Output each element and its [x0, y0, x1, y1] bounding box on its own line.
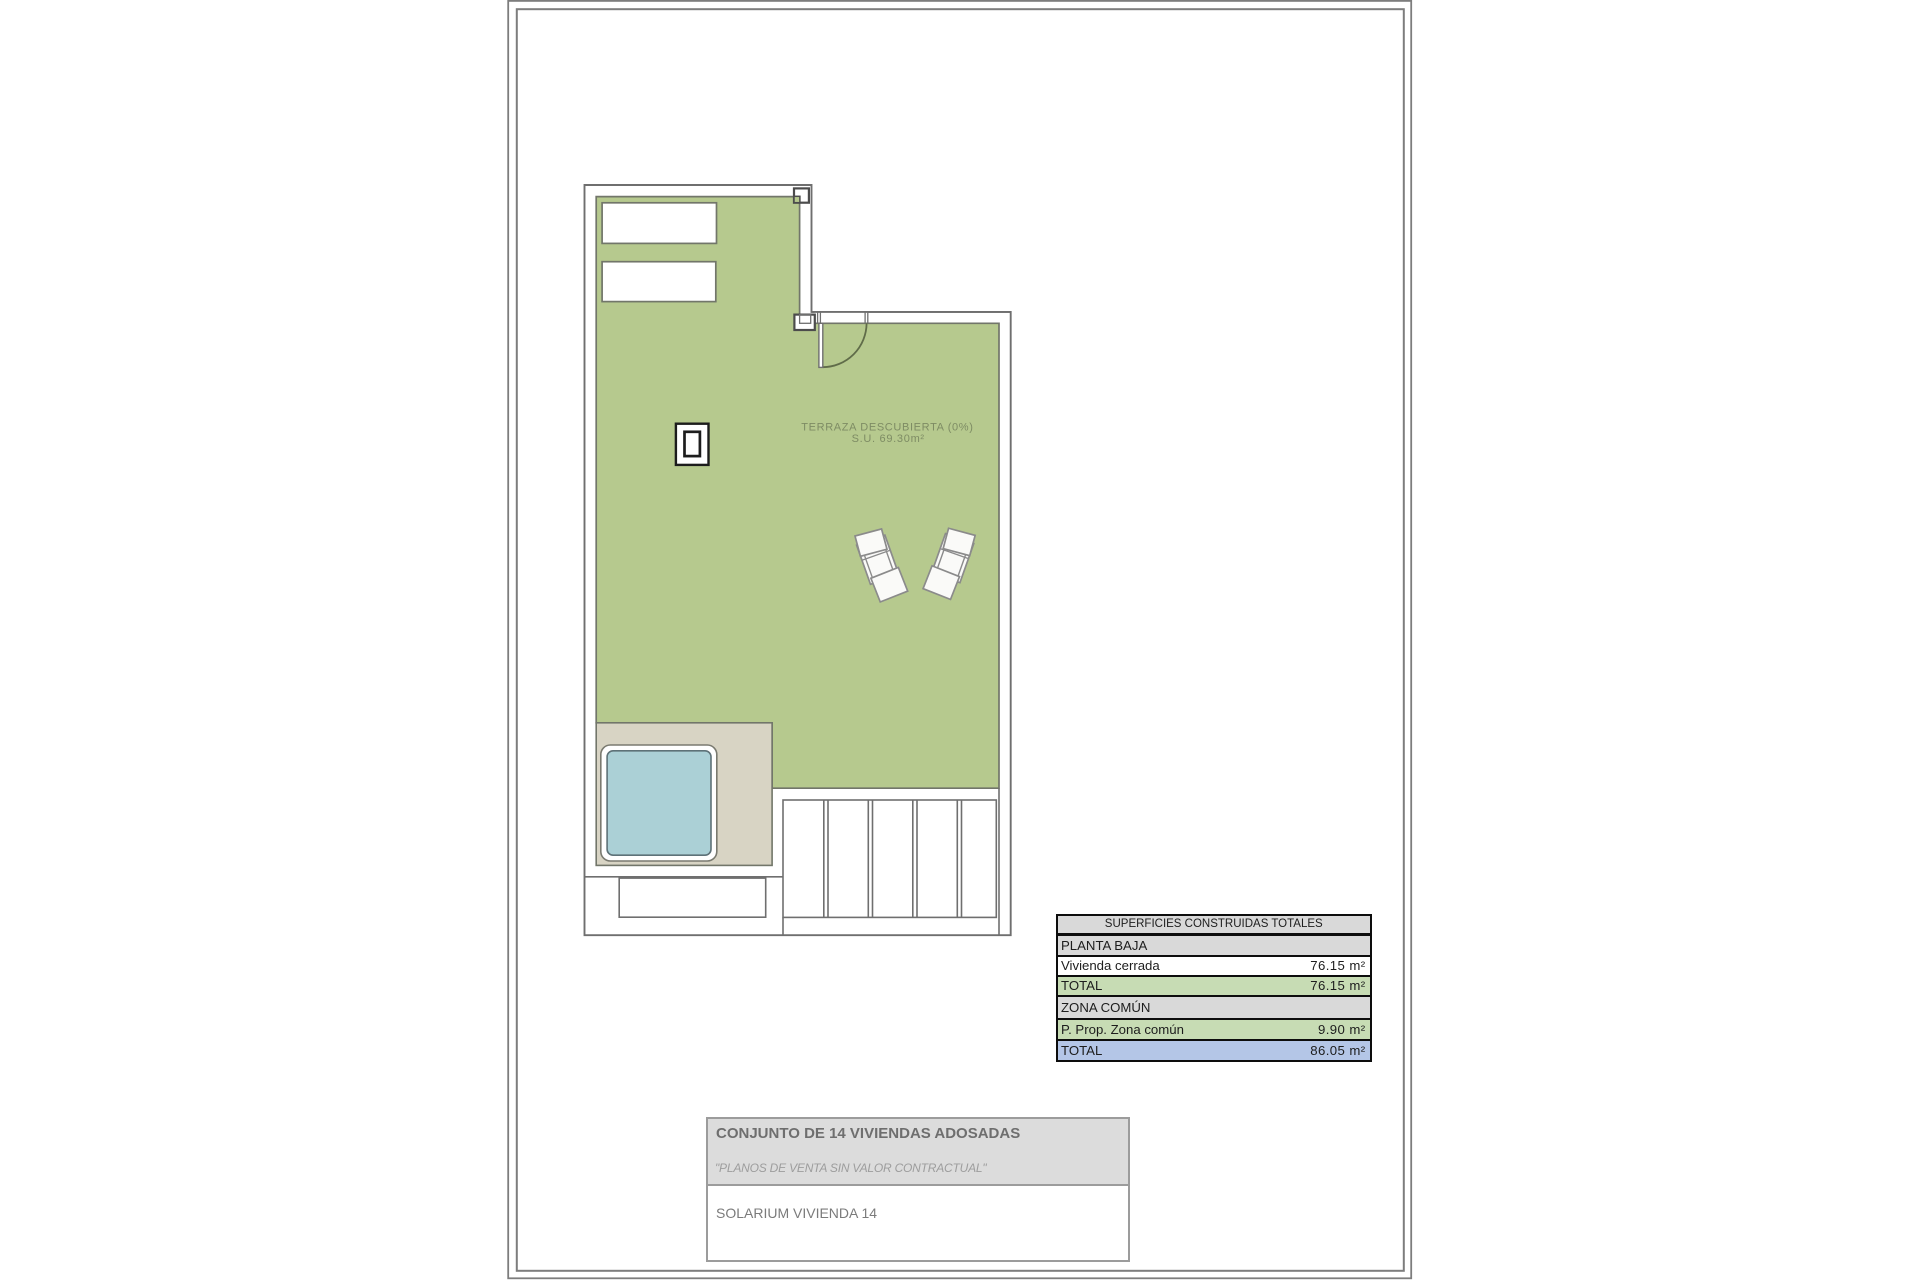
svg-text:TERRAZA DESCUBIERTA (0%): TERRAZA DESCUBIERTA (0%)	[801, 422, 973, 434]
svg-text:S.U. 69.30m²: S.U. 69.30m²	[852, 433, 925, 445]
